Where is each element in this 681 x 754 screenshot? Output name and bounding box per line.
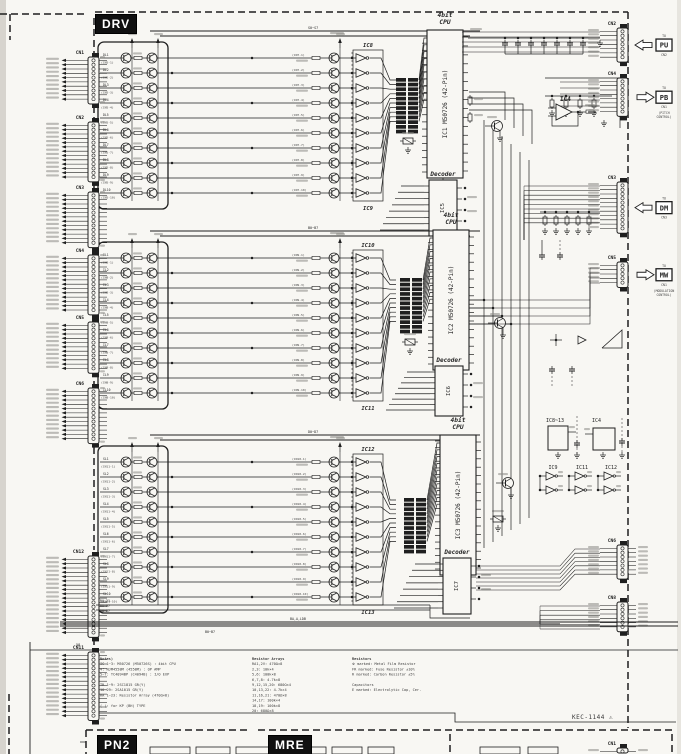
illegible-text [46,286,59,288]
shape [92,721,99,725]
illegible-text [46,436,59,438]
illegible-text [588,183,599,185]
illegible-text [473,396,483,398]
illegible-text [133,67,142,69]
shape [92,373,99,377]
section-label-drv: DRV [95,14,137,34]
illegible-text [46,123,59,125]
row-ref-label: (CN7-9) [292,173,305,177]
board-tag-label: PB [660,94,668,102]
row-label: SL7 [103,547,109,551]
shape [404,498,414,502]
resistor [134,316,142,319]
illegible-text [638,749,648,751]
illegible-text [588,272,599,274]
shape [408,97,418,101]
row-ref-label: (CN8-2) [101,276,114,280]
illegible-text [133,561,142,563]
row-label: SL4 [103,502,109,506]
row-ref-label: (CN10-10) [292,592,308,596]
row-ref-label: (CN8-9) [101,381,114,385]
resistor [134,131,142,134]
tag-note: CONTROL) [657,293,672,297]
illegible-text [46,349,59,351]
right-scan-edge [677,0,681,754]
junction-dot [577,111,580,114]
illegible-text [46,62,59,64]
decoder-label: Decoder [429,171,456,178]
row-ref-label: (CN11-4) [101,510,116,514]
illegible-text [46,162,59,164]
resistor [134,346,142,349]
shape [408,102,418,106]
illegible-text [46,295,59,297]
bus-label: BA,A,LDB [290,617,306,621]
illegible-text [296,380,308,382]
shape [412,311,422,315]
illegible-text [46,58,59,60]
illegible-text [588,196,599,198]
ic-label: IC6 [446,386,452,396]
shape [412,316,422,320]
illegible-text [133,282,142,284]
illegible-text [128,233,137,235]
row-ref-label: (CN7-4) [292,98,305,102]
illegible-text [296,479,308,481]
junction-dot [470,395,473,398]
illegible-text [588,226,599,228]
shape [400,330,410,334]
resistor [312,460,320,463]
note-line: RA 1~23: Resistor Array (470Ω×8) [100,693,169,697]
note-line: 6,7,8: 4.7k×8 [252,678,280,682]
illegible-text [588,559,599,561]
resistor [312,176,320,179]
junction-dot [478,587,481,590]
illegible-text [46,402,59,404]
shape [408,106,418,110]
resistor [134,361,142,364]
shape [416,550,426,554]
ic-label: IC12 [361,447,375,453]
shape [400,292,410,296]
illegible-text [46,419,59,421]
connector-label: CN12 [73,549,84,555]
row-label: SL5 [103,517,109,521]
illegible-text [46,227,59,229]
note-line: RA1,2V: 470Ω×8 [252,662,282,666]
shape [620,178,627,182]
illegible-text [46,591,59,593]
illegible-text [638,572,648,574]
resistor [312,131,320,134]
bus-label: B0~B7 [100,604,110,608]
illegible-text [46,303,59,305]
resistor [312,71,320,74]
illegible-text [46,277,59,279]
illegible-text [296,494,308,496]
connector-label: CN6 [608,538,617,544]
shape [620,541,627,545]
illegible-text [588,267,599,269]
note-line: 9,12,15,20: 680Ω×4 [252,683,291,687]
illegible-text [588,96,599,98]
illegible-text [467,196,477,198]
illegible-text [46,608,59,610]
resistor [134,256,142,259]
illegible-text [133,372,142,374]
ic-label: IC11 [576,465,588,471]
illegible-text [46,561,59,563]
row-label: IL3 [103,283,109,287]
illegible-text [46,713,59,715]
junction-dot [251,506,254,509]
illegible-text [46,323,59,325]
illegible-text [588,276,599,278]
ic-label: IC13 [361,610,375,616]
shape [404,522,414,526]
shape [408,125,418,129]
shape [416,536,426,540]
resistor [312,391,320,394]
row-ref-label: (CN7-5) [292,113,305,117]
illegible-text [133,516,142,518]
resistor [312,595,320,598]
row-label: DL9 [103,173,109,177]
resistor [134,331,142,334]
illegible-text [100,370,105,372]
illegible-text [46,357,59,359]
illegible-text [46,674,59,676]
illegible-text [296,599,308,601]
illegible-text [46,621,59,623]
illegible-text [46,613,59,615]
resistor [312,56,320,59]
tag-note: CN1 [661,283,667,287]
illegible-text [100,56,105,58]
illegible-text [154,33,163,35]
connector-label: CN1 [608,741,617,747]
illegible-text [46,661,59,663]
illegible-text [46,260,59,262]
resistor [134,580,142,583]
illegible-text [473,382,483,384]
row-label: SL8 [103,562,109,566]
resistor [134,286,142,289]
resistor [312,146,320,149]
illegible-text [336,437,345,439]
illegible-text [296,120,308,122]
shape [404,550,414,554]
note-line: TR 1~9: 2SC1815 GR(Y) [100,683,145,687]
shape [620,258,627,262]
junction-dot [470,373,473,376]
shape [412,292,422,296]
board-tag-label: MW [660,271,669,279]
illegible-text [588,187,599,189]
illegible-text [296,180,308,182]
note-line: 4: NJM4558M (4558M) : OP AMP [100,667,161,671]
shape [92,182,99,186]
connector-label: CN6 [76,381,85,387]
illegible-text [46,327,59,329]
illegible-text [46,210,59,212]
shape [92,637,99,641]
illegible-text [46,397,59,399]
shape [408,116,418,120]
illegible-text [133,127,142,129]
illegible-text [588,200,599,202]
shape [396,120,406,124]
illegible-text [638,607,648,609]
row-ref-label: (CN10-2) [292,472,307,476]
illegible-text [46,578,59,580]
illegible-text [588,38,599,40]
ic-label: IC4 [592,418,601,424]
illegible-text [296,60,308,62]
shape [620,598,627,602]
illegible-text [638,616,648,618]
junction-dot [171,302,174,305]
shape [404,512,414,516]
resistor [312,161,320,164]
row-ref-label: (CN10-5) [292,517,307,521]
row-ref-label: (CN9-3) [292,283,305,287]
illegible-text [133,456,142,458]
illegible-text [46,307,59,309]
resistor [134,191,142,194]
shape [404,517,414,521]
illegible-text [46,340,59,342]
junction-dot [171,596,174,599]
cpu-type-label: CPU [445,219,456,226]
row-ref-label: (CN7-1) [292,53,305,57]
schematic-page: S0~S7DL1(CN5-1)(CN7-1)DL2(CN5-2)(CN7-2)D… [0,0,681,754]
shape [400,278,410,282]
illegible-text [133,387,142,389]
junction-dot [251,257,254,260]
shape [396,97,406,101]
note-line: 20: 680Ω×8 [252,709,274,713]
shape [400,287,410,291]
row-ref-label: (CN5-4) [101,106,114,110]
shape [396,92,406,96]
resistor [312,475,320,478]
illegible-text [296,395,308,397]
illegible-text [133,591,142,593]
shape [92,384,99,388]
shape [92,104,99,108]
junction-dot [171,132,174,135]
shape [400,311,410,315]
shape [92,53,99,57]
shape [404,526,414,530]
shape [416,531,426,535]
row-label: DL6 [103,128,109,132]
illegible-text [133,187,142,189]
illegible-text [296,165,308,167]
shape [412,302,422,306]
illegible-text [296,524,308,526]
resistor [312,580,320,583]
row-ref-label: (CN11-8) [101,570,116,574]
shape [400,283,410,287]
decoder-label: Decoder [435,357,462,364]
illegible-text [46,66,59,68]
illegible-text [404,333,416,335]
row-ref-label: (CN8-6) [101,336,114,340]
ic-label: IC12 [605,465,617,471]
shape [92,552,99,556]
row-label: DL2 [103,68,109,72]
row-ref-label: (CN7-6) [292,128,305,132]
illegible-text [558,471,563,473]
shape [396,78,406,82]
illegible-text [154,437,163,439]
shape [620,24,627,28]
junction-dot [566,211,569,214]
illegible-text [133,52,142,54]
shape [620,233,627,237]
ic-label: IC11 [361,406,374,412]
ic-label: IC8 [363,43,374,49]
illegible-text [46,336,59,338]
row-ref-label: (CN10-3) [292,487,307,491]
illegible-text [46,236,59,238]
illegible-text [133,486,142,488]
junction-dot [171,506,174,509]
row-label: IL9 [103,373,109,377]
resistor [312,316,320,319]
note-line: Capacitors [352,683,374,687]
illegible-text [588,616,599,618]
illegible-text [296,539,308,541]
row-label: DL5 [103,113,109,117]
shape [416,540,426,544]
shape [404,503,414,507]
shape [412,306,422,310]
resistor [312,256,320,259]
note-line: ( ): for KP (BH) TYPE [100,704,145,708]
illegible-text [46,144,59,146]
illegible-text [584,428,590,430]
illegible-text [100,101,105,103]
shape [400,297,410,301]
illegible-text [296,105,308,107]
illegible-text [336,33,345,35]
illegible-text [296,260,308,262]
bus-label: B0~B7 [308,226,318,230]
resistor [312,565,320,568]
illegible-text [638,559,648,561]
illegible-text [46,149,59,151]
illegible-text [588,192,599,194]
illegible-text [133,576,142,578]
resistor [134,176,142,179]
illegible-text [46,653,59,655]
resistor [134,505,142,508]
junction-dot [555,211,558,214]
illegible-text [46,679,59,681]
illegible-text [588,563,599,565]
resistor [134,490,142,493]
illegible-text [154,233,163,235]
illegible-text [588,550,599,552]
junction-dot [171,72,174,75]
illegible-text [100,191,105,193]
illegible-text [100,555,105,557]
section-label-mre: MRE [268,735,312,754]
tag-note: TO [662,86,666,90]
junction-dot [251,302,254,305]
junction-dot [588,211,591,214]
illegible-text [46,127,59,129]
shape [416,507,426,511]
junction-dot [251,102,254,105]
illegible-text [46,88,59,90]
shape [412,287,422,291]
shape [396,87,406,91]
illegible-text [296,275,308,277]
row-ref-label: (CN9-10) [292,388,307,392]
resistor [312,331,320,334]
note-line: 14,17: 100k×4 [252,699,280,703]
junction-dot [251,347,254,350]
illegible-text [46,657,59,659]
junction-dot [464,198,467,201]
illegible-text [296,150,308,152]
illegible-text [296,135,308,137]
illegible-text [402,132,414,134]
illegible-text [588,280,599,282]
shape [404,545,414,549]
ic-label: IC4 [560,96,571,103]
shape [396,106,406,110]
connector-label: CN2 [608,21,617,27]
resistor [134,535,142,538]
row-ref-label: (CN5-10) [101,196,116,200]
shape [92,318,99,322]
row-ref-label: (CN11-3) [101,495,116,499]
illegible-text [46,696,59,698]
row-ref-label: (CN10-7) [292,547,307,551]
shape [408,78,418,82]
shape [620,74,627,78]
row-ref-label: (CN5-1) [101,61,114,65]
illegible-text [336,233,345,235]
illegible-text [46,626,59,628]
junction-dot [470,384,473,387]
illegible-text [296,509,308,511]
note-line: Resistors [352,657,371,661]
shape [400,320,410,324]
illegible-text [46,92,59,94]
illegible-text [128,437,137,439]
shape [404,540,414,544]
illegible-text [588,263,599,265]
junction-dot [171,476,174,479]
illegible-text [587,471,592,473]
junction-dot [251,192,254,195]
illegible-text [133,531,142,533]
junction-dot [251,392,254,395]
illegible-text [296,305,308,307]
row-ref-label: (CN9-6) [292,328,305,332]
junction-dot [171,102,174,105]
shape [396,83,406,87]
resistor [312,376,320,379]
resistor [134,86,142,89]
